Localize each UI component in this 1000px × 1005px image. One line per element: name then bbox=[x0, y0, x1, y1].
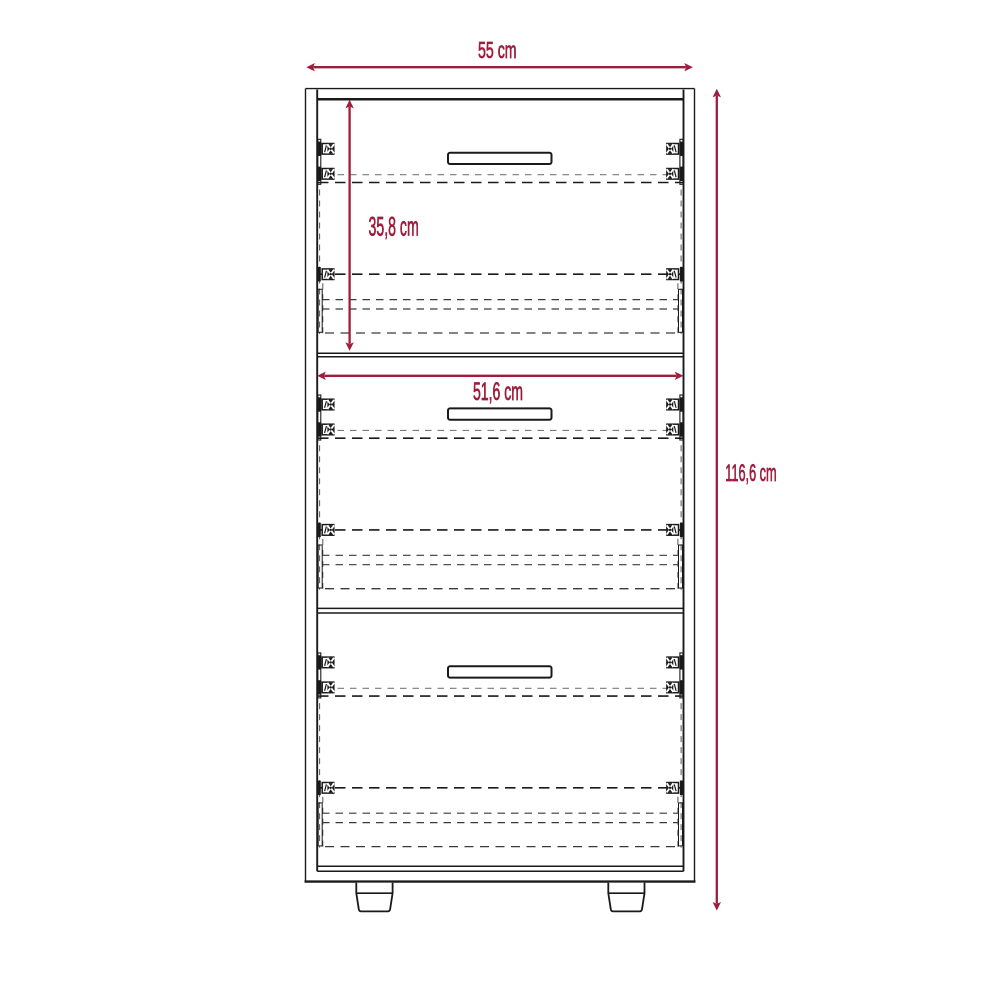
svg-text:55 cm: 55 cm bbox=[478, 37, 517, 63]
svg-text:35,8 cm: 35,8 cm bbox=[369, 212, 419, 242]
svg-text:51,6 cm: 51,6 cm bbox=[473, 378, 523, 406]
svg-text:116,6 cm: 116,6 cm bbox=[725, 460, 776, 487]
